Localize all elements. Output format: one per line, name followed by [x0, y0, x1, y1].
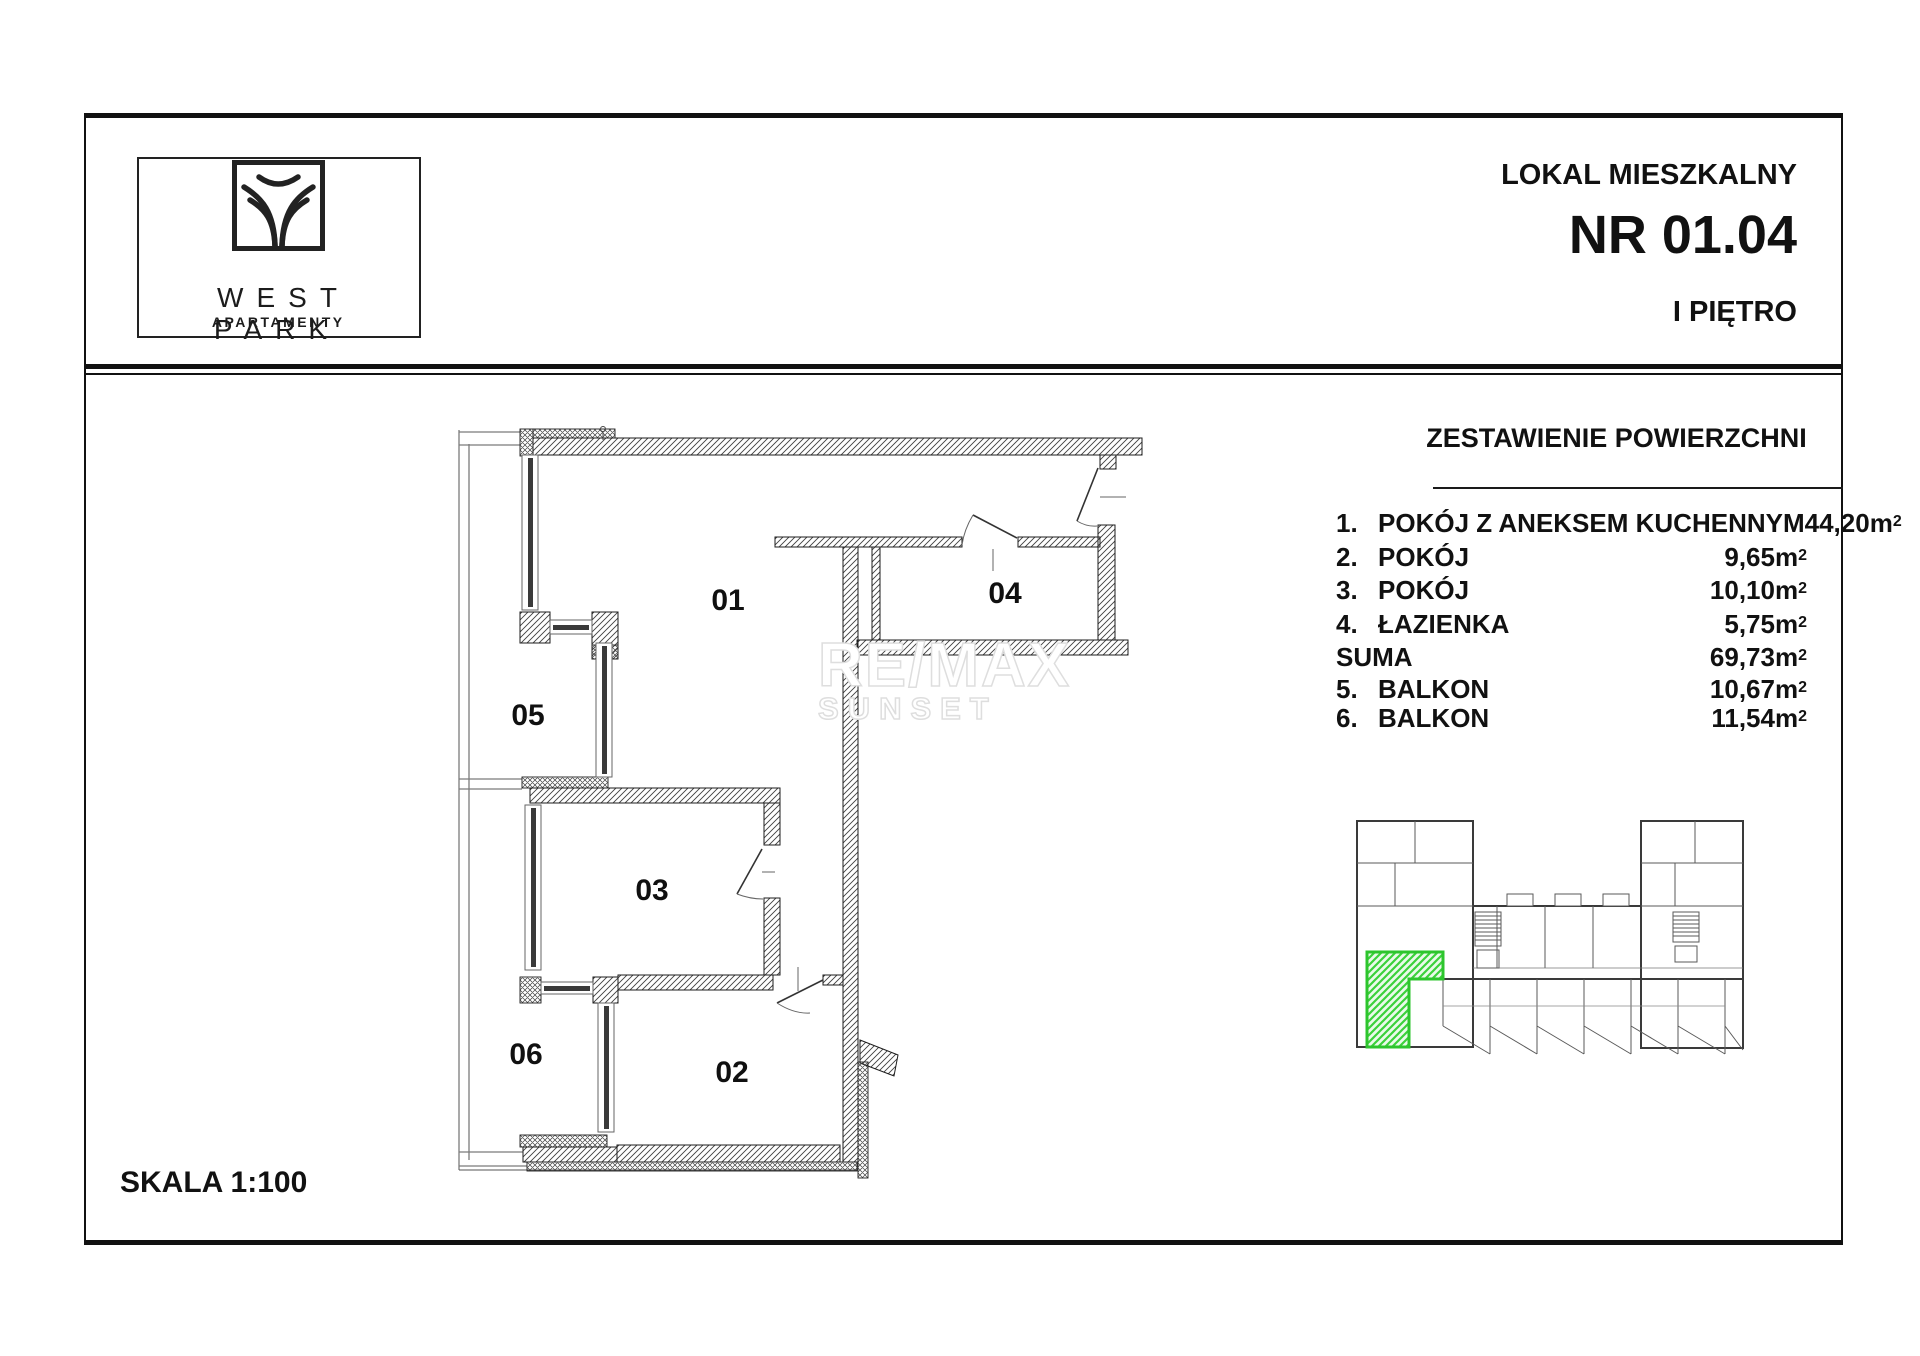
row-value: 10,10m2	[1710, 575, 1807, 606]
row-number: 4.	[1336, 609, 1378, 640]
area-row: 3. POKÓJ 10,10m2	[1336, 574, 1807, 608]
row-label: POKÓJ	[1378, 542, 1469, 573]
room-label-01: 01	[711, 584, 744, 617]
row-value: 11,54m2	[1711, 703, 1807, 734]
minimap-bottom-units	[1443, 979, 1743, 1054]
row-number: 1.	[1336, 508, 1378, 539]
row-number: 6.	[1336, 703, 1378, 734]
row-label: BALKON	[1378, 674, 1489, 705]
row-value: 69,73m2	[1710, 642, 1807, 673]
area-row: 4. ŁAZIENKA 5,75m2	[1336, 608, 1807, 642]
row-label: SUMA	[1336, 642, 1413, 673]
minimap-highlighted-unit	[1367, 952, 1443, 1047]
unit-type-label: LOKAL MIESZKALNY	[1501, 159, 1797, 192]
room-label-04: 04	[988, 577, 1022, 610]
room-label-02: 02	[715, 1056, 748, 1089]
floor-plan: 01 04 05 03 06 02 RE/MAX SUNSET	[440, 405, 1160, 1195]
row-number: 3.	[1336, 575, 1378, 606]
areas-table-rule	[1433, 487, 1843, 489]
scale-label: SKALA 1:100	[120, 1166, 307, 1200]
area-row: 5. BALKON 10,67m2	[1336, 675, 1807, 704]
doors	[737, 468, 1126, 1013]
row-number: 2.	[1336, 542, 1378, 573]
area-row: 6. BALKON 11,54m2	[1336, 704, 1807, 733]
room-label-06: 06	[509, 1038, 542, 1071]
floor-label: I PIĘTRO	[1673, 296, 1797, 329]
area-row-sum: SUMA 69,73m2	[1336, 641, 1807, 675]
room-label-05: 05	[511, 699, 544, 732]
minimap-cores	[1475, 912, 1699, 968]
row-label: POKÓJ Z ANEKSEM KUCHENNYM	[1378, 508, 1805, 539]
logo-subtitle-text: APARTAMENTY	[137, 314, 417, 330]
watermark-sunset: SUNSET	[818, 691, 998, 726]
row-value: 44,20m2	[1805, 508, 1902, 539]
row-value: 9,65m2	[1724, 542, 1807, 573]
header-separator-thin	[84, 373, 1843, 375]
header-separator-thick	[84, 364, 1843, 369]
watermark-remax: RE/MAX	[818, 631, 1071, 700]
row-number: 5.	[1336, 674, 1378, 705]
areas-table: 1. POKÓJ Z ANEKSEM KUCHENNYM 44,20m2 2. …	[1336, 507, 1807, 733]
areas-table-title: ZESTAWIENIE POWIERZCHNI	[1336, 423, 1807, 454]
row-label: POKÓJ	[1378, 575, 1469, 606]
area-row: 1. POKÓJ Z ANEKSEM KUCHENNYM 44,20m2	[1336, 507, 1807, 541]
area-row: 2. POKÓJ 9,65m2	[1336, 541, 1807, 575]
row-value: 5,75m2	[1724, 609, 1807, 640]
unit-number: NR 01.04	[1569, 204, 1797, 266]
room-label-03: 03	[635, 874, 668, 907]
west-park-tree-icon	[232, 160, 325, 251]
building-minimap	[1355, 818, 1747, 1064]
row-label: BALKON	[1378, 703, 1489, 734]
row-value: 10,67m2	[1710, 674, 1807, 705]
row-label: ŁAZIENKA	[1378, 609, 1509, 640]
